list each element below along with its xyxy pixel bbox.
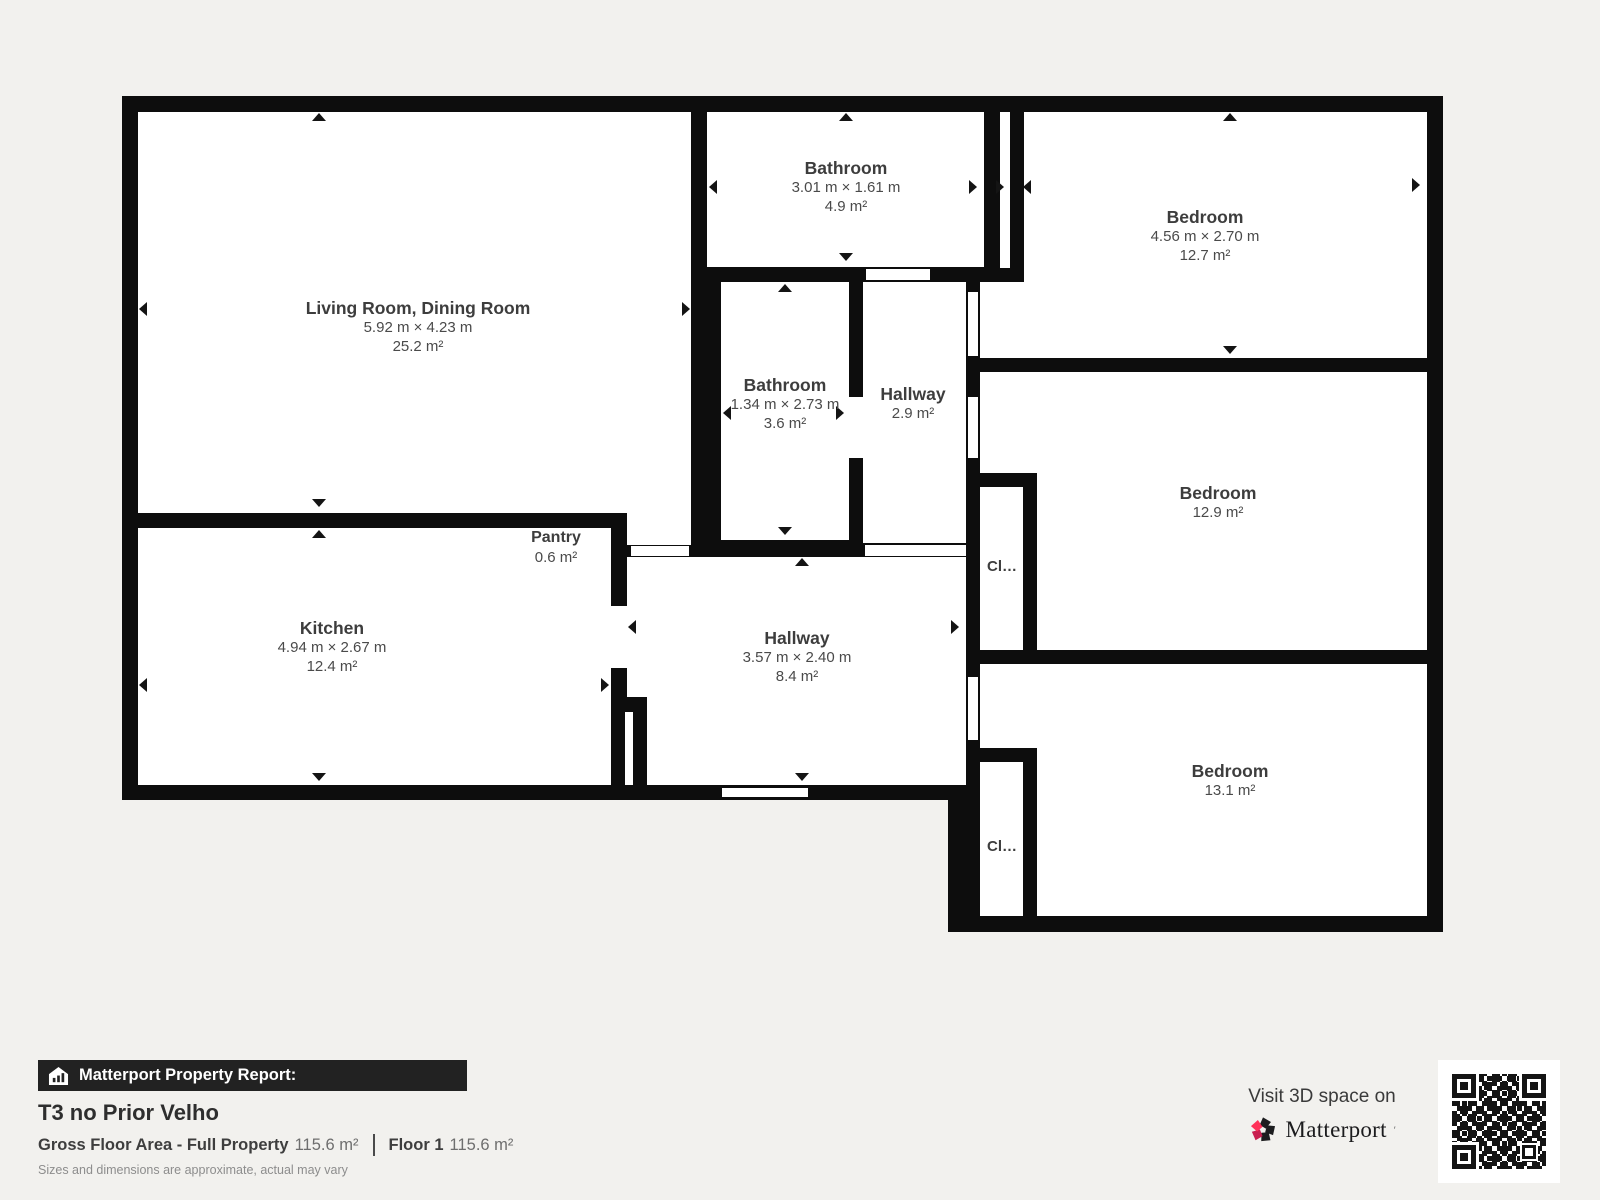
arrow-living-bottom xyxy=(312,499,326,507)
matterport-pinwheel-icon xyxy=(1248,1115,1278,1145)
arrow-shaft-right xyxy=(996,180,1004,194)
qr-finder-bottom-left xyxy=(1452,1145,1476,1169)
floorplan-report: Living Room, Dining Room 5.92 m × 4.23 m… xyxy=(0,0,1600,1200)
arrow-bathroom-top-top xyxy=(839,113,853,121)
room-label-kitchen: Kitchen 4.94 m × 2.67 m 12.4 m² xyxy=(278,618,387,676)
arrow-hallway-main-top xyxy=(795,558,809,566)
arrow-bedroom-top-top xyxy=(1223,113,1237,121)
room-label-closet-mid: Cl… xyxy=(987,558,1017,575)
door-kitchen xyxy=(611,606,627,668)
room-label-bedroom-mid: Bedroom 12.9 m² xyxy=(1180,483,1257,522)
door-bathroom-mid xyxy=(849,397,863,458)
room-area: 13.1 m² xyxy=(1192,781,1269,800)
arrow-bedroom-top-left xyxy=(1023,180,1031,194)
arrow-kitchen-bottom xyxy=(312,773,326,781)
room-name: Pantry xyxy=(531,528,581,548)
room-living-room-connector xyxy=(627,513,691,545)
room-dimensions: 3.01 m × 1.61 m xyxy=(792,178,901,197)
door-pantry xyxy=(532,590,609,600)
door-bathroom-top xyxy=(866,269,930,280)
room-label-bathroom-top: Bathroom 3.01 m × 1.61 m 4.9 m² xyxy=(792,158,901,216)
room-area: 12.9 m² xyxy=(1180,503,1257,522)
door-living-to-hallway xyxy=(631,546,689,556)
trademark-mark: ′ xyxy=(1394,1125,1396,1135)
room-area: 12.4 m² xyxy=(278,657,387,676)
qr-alignment-square xyxy=(1522,1145,1536,1159)
room-label-hallway-main: Hallway 3.57 m × 2.40 m 8.4 m² xyxy=(743,628,852,686)
matterport-wordmark: Matterport xyxy=(1285,1117,1386,1143)
room-area: 0.6 m² xyxy=(531,548,581,567)
arrow-kitchen-left xyxy=(139,678,147,692)
room-label-living: Living Room, Dining Room 5.92 m × 4.23 m… xyxy=(306,298,531,356)
floor-label: Floor 1 xyxy=(389,1136,444,1155)
floor-value: 115.6 m² xyxy=(450,1136,514,1155)
arrow-bathroom-top-left xyxy=(709,180,717,194)
disclaimer-text: Sizes and dimensions are approximate, ac… xyxy=(38,1163,348,1177)
qr-card xyxy=(1438,1060,1560,1183)
door-hallway-small-to-main xyxy=(865,545,966,556)
room-label-closet-bottom: Cl… xyxy=(987,838,1017,855)
room-name: Kitchen xyxy=(278,618,387,638)
gross-area-label: Gross Floor Area - Full Property xyxy=(38,1136,289,1155)
report-header-bar: Matterport Property Report: xyxy=(38,1060,467,1091)
room-area: 8.4 m² xyxy=(743,667,852,686)
room-label-bedroom-bottom: Bedroom 13.1 m² xyxy=(1192,761,1269,800)
room-label-pantry: Pantry 0.6 m² xyxy=(531,528,581,567)
report-label: Matterport Property Report: xyxy=(79,1066,296,1085)
room-name: Living Room, Dining Room xyxy=(306,298,531,318)
room-dimensions: 1.34 m × 2.73 m xyxy=(731,395,840,414)
room-area: 3.6 m² xyxy=(731,414,840,433)
qr-finder-top-left xyxy=(1452,1074,1476,1098)
arrow-bathroom-top-right xyxy=(969,180,977,194)
arrow-living-top xyxy=(312,113,326,121)
visit-3d-text: Visit 3D space on xyxy=(1212,1086,1432,1108)
arrow-living-left xyxy=(139,302,147,316)
room-label-hallway-small: Hallway 2.9 m² xyxy=(880,384,945,423)
room-name: Bedroom xyxy=(1151,207,1260,227)
arrow-kitchen-right xyxy=(601,678,609,692)
arrow-bathroom-top-bottom xyxy=(839,253,853,261)
gross-area-value: 115.6 m² xyxy=(295,1136,359,1155)
room-name: Hallway xyxy=(743,628,852,648)
house-chart-icon xyxy=(48,1066,69,1086)
room-name: Bedroom xyxy=(1192,761,1269,781)
room-dimensions: 4.56 m × 2.70 m xyxy=(1151,227,1260,246)
matterport-logo: Matterport ′ xyxy=(1212,1115,1432,1145)
room-label-bedroom-top: Bedroom 4.56 m × 2.70 m 12.7 m² xyxy=(1151,207,1260,265)
room-area: 25.2 m² xyxy=(306,337,531,356)
arrow-bathroom-mid-bottom xyxy=(778,527,792,535)
wall-closet-bottom-right xyxy=(1023,748,1037,932)
divider xyxy=(373,1134,375,1156)
room-area: 4.9 m² xyxy=(792,197,901,216)
room-name: Hallway xyxy=(880,384,945,404)
room-name: Bedroom xyxy=(1180,483,1257,503)
door-bedroom-top xyxy=(968,292,978,356)
arrow-bedroom-top-right xyxy=(1412,178,1420,192)
arrow-hallway-main-right xyxy=(951,620,959,634)
room-dimensions: 4.94 m × 2.67 m xyxy=(278,638,387,657)
arrow-kitchen-top xyxy=(312,530,326,538)
qr-finder-top-right xyxy=(1522,1074,1546,1098)
promo-block: Visit 3D space on Matterport ′ xyxy=(1212,1086,1432,1145)
room-dimensions: 5.92 m × 4.23 m xyxy=(306,318,531,337)
room-dimensions: 3.57 m × 2.40 m xyxy=(743,648,852,667)
wall-slit-jog xyxy=(625,712,633,785)
area-summary: Gross Floor Area - Full Property 115.6 m… xyxy=(38,1134,513,1156)
room-bedroom-top-extension xyxy=(980,282,1024,358)
door-bedroom-bottom xyxy=(968,677,978,740)
room-label-bathroom-mid: Bathroom 1.34 m × 2.73 m 3.6 m² xyxy=(731,375,840,433)
room-name: Bathroom xyxy=(731,375,840,395)
door-bedroom-mid xyxy=(968,397,978,458)
qr-code xyxy=(1452,1074,1546,1169)
arrow-hallway-main-left xyxy=(628,620,636,634)
wall-closet-mid-right xyxy=(1023,473,1037,664)
room-name: Bathroom xyxy=(792,158,901,178)
arrow-living-right xyxy=(682,302,690,316)
arrow-bedroom-top-bottom xyxy=(1223,346,1237,354)
door-entrance xyxy=(722,788,808,797)
arrow-bathroom-mid-top xyxy=(778,284,792,292)
arrow-hallway-main-bottom xyxy=(795,773,809,781)
property-title: T3 no Prior Velho xyxy=(38,1100,219,1126)
room-area: 12.7 m² xyxy=(1151,246,1260,265)
room-area: 2.9 m² xyxy=(880,404,945,423)
